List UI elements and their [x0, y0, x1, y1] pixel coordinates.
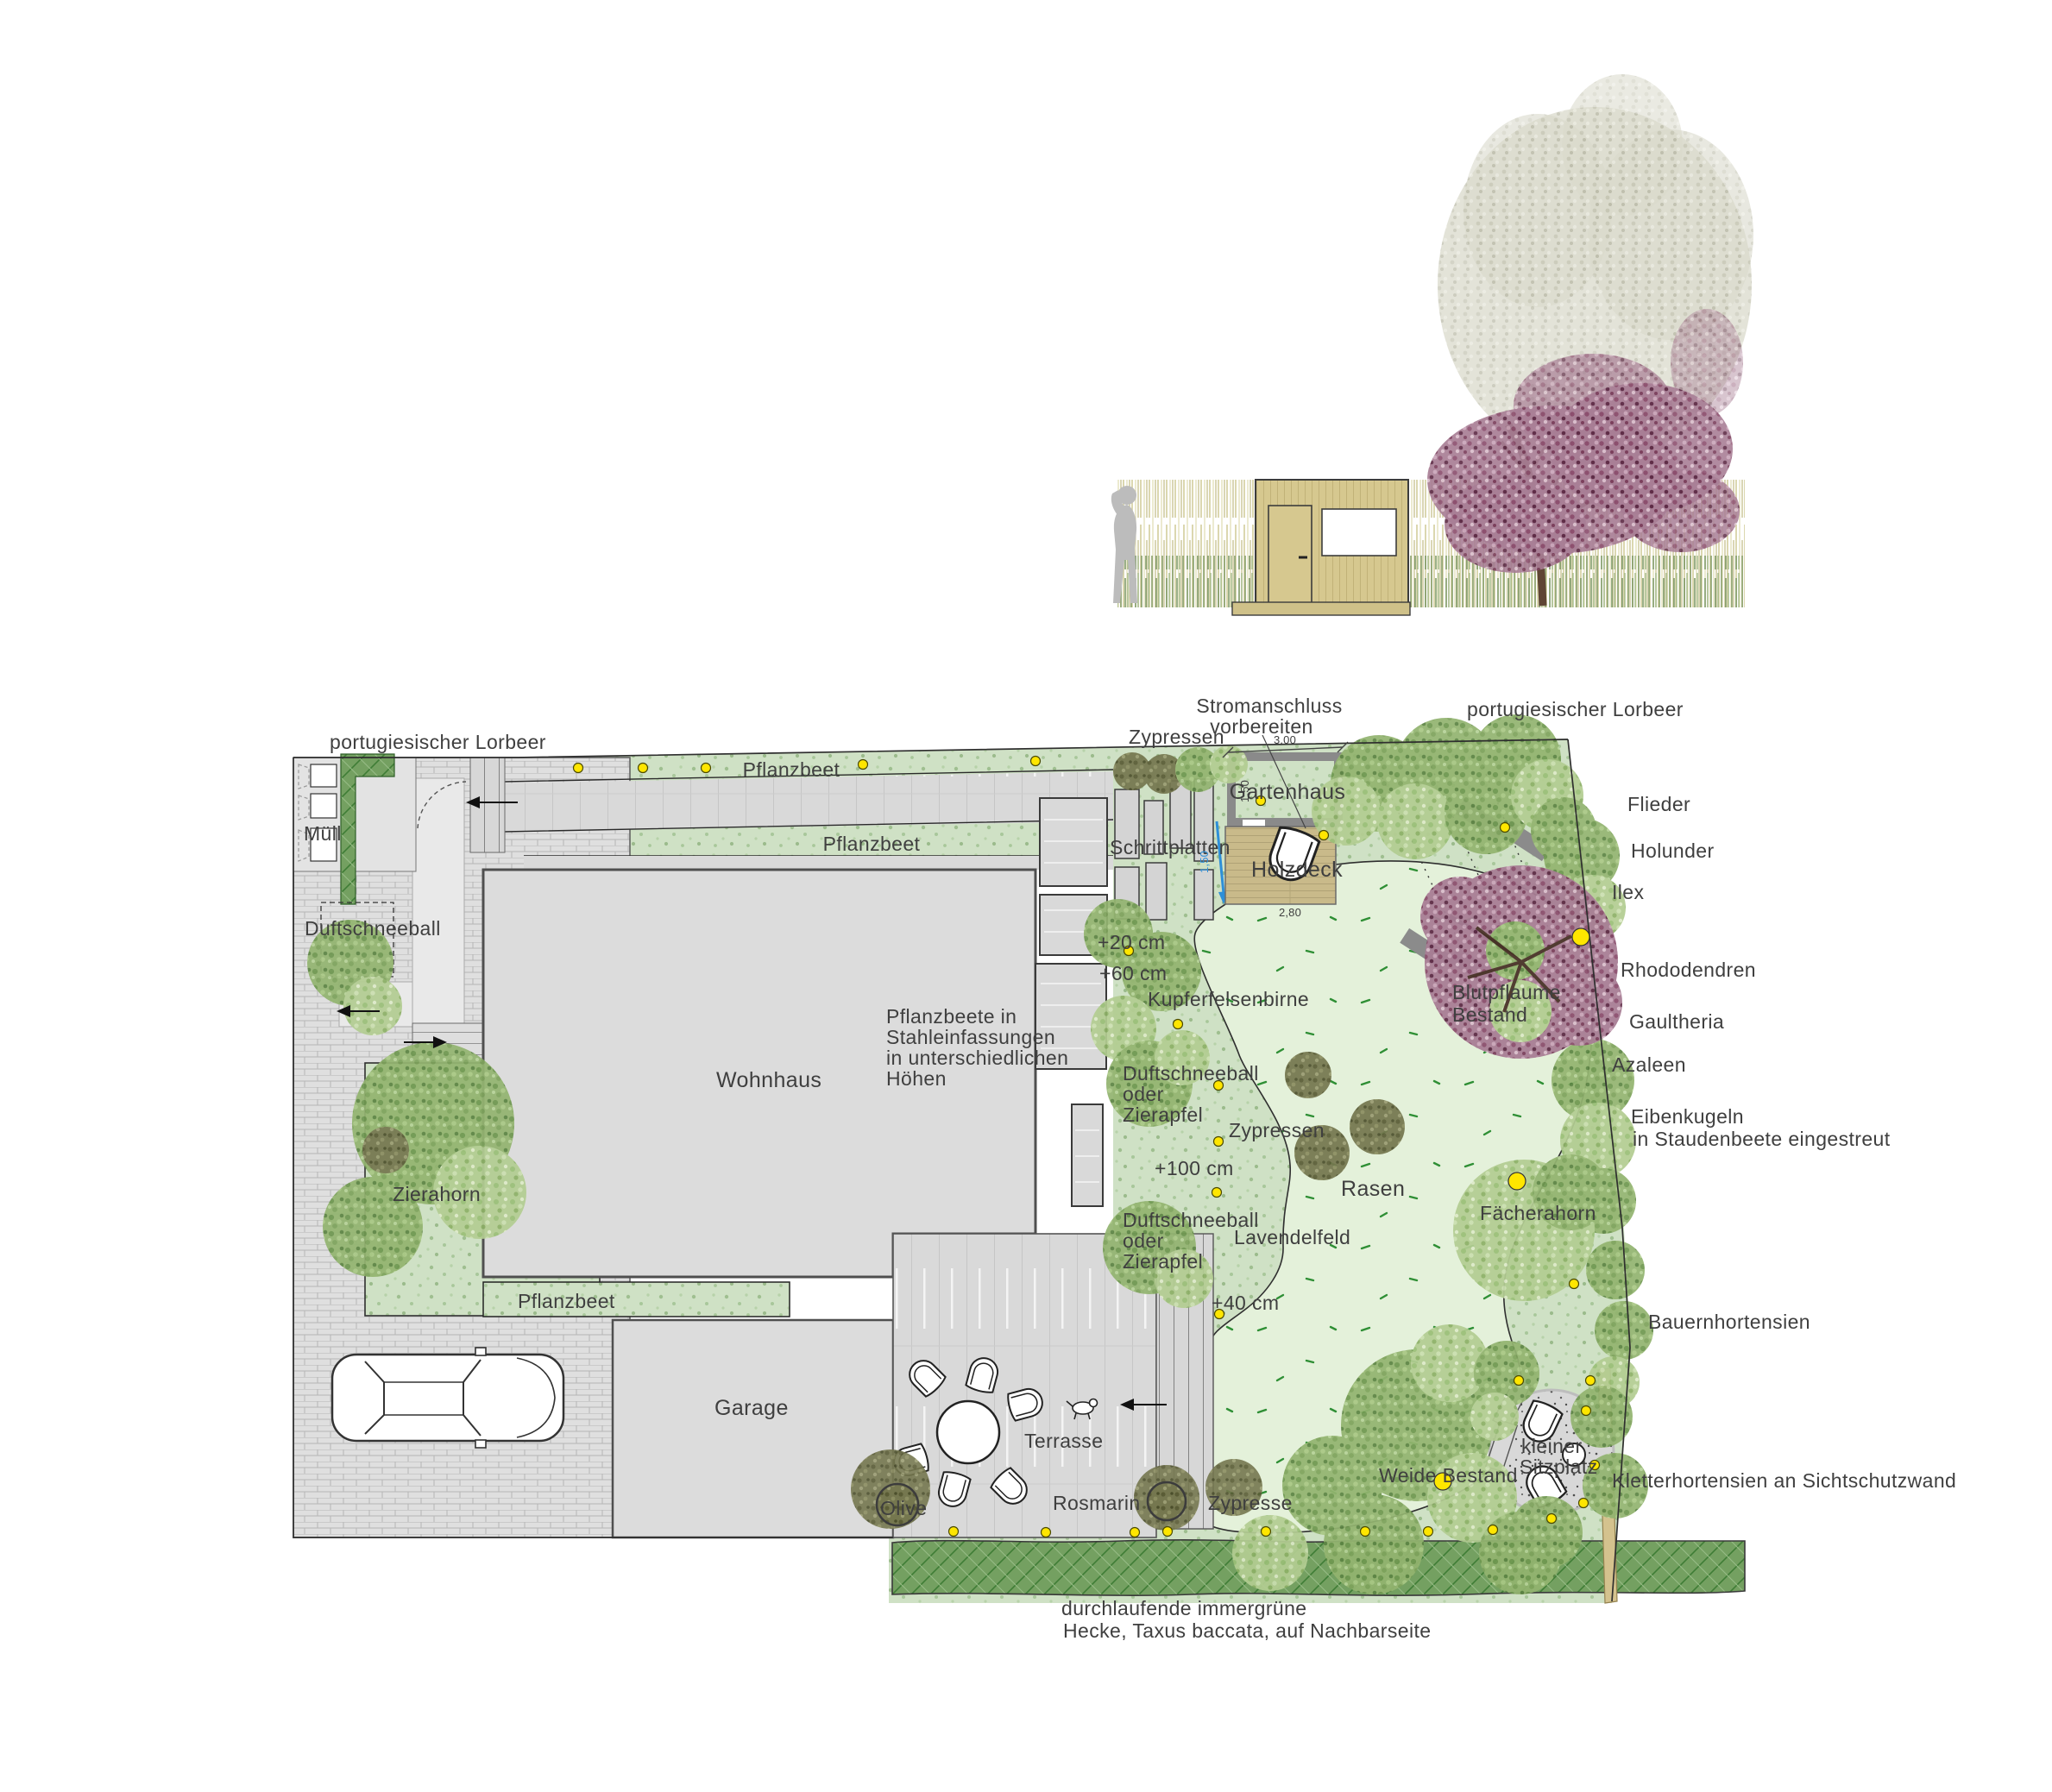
label-hydrangea: Bauernhortensien: [1648, 1311, 1810, 1333]
label-steel-3: in unterschiedlichen: [886, 1047, 1068, 1069]
label-power-1: Stromanschluss: [1196, 695, 1342, 717]
label-h100: +100 cm: [1155, 1157, 1234, 1179]
label-plum-2: Bestand: [1452, 1003, 1527, 1026]
label-hedge-2: Hecke, Taxus baccata, auf Nachbarseite: [1063, 1619, 1431, 1642]
label-seat-1: kleiner: [1521, 1435, 1583, 1457]
label-laurel-left: portugiesischer Lorbeer: [330, 731, 546, 753]
blossom-tree-elevation: [1427, 74, 1753, 606]
site-plan: portugiesischer Lorbeer portugiesischer …: [293, 695, 1956, 1642]
label-bed-left: Pflanzbeet: [518, 1290, 615, 1312]
garage-footprint: [613, 1320, 893, 1537]
label-olive: Olive: [880, 1497, 927, 1519]
dim-gartenhaus-width: 3,00: [1274, 733, 1296, 746]
label-steel-1: Pflanzbeete in: [886, 1005, 1017, 1028]
steel-frame-beds: [1035, 798, 1107, 1206]
label-azaleen: Azaleen: [1612, 1053, 1686, 1076]
label-garage: Garage: [714, 1396, 789, 1420]
label-rhododendren: Rhododendren: [1621, 959, 1756, 981]
label-terrace: Terrasse: [1024, 1430, 1103, 1452]
label-hedge-1: durchlaufende immergrüne: [1061, 1597, 1306, 1619]
label-duft1-1: Duftschneeball: [1123, 1062, 1259, 1085]
walkway-house-edge: [524, 856, 1113, 870]
label-bed-top: Pflanzbeet: [743, 758, 840, 781]
label-steel-2: Stahleinfassungen: [886, 1026, 1055, 1048]
label-cypresses-mid: Zypressen: [1229, 1119, 1325, 1141]
label-fan-maple: Fächerahorn: [1480, 1202, 1596, 1224]
label-duftschneeball-left: Duftschneeball: [305, 917, 441, 940]
label-duft2-2: oder: [1123, 1229, 1164, 1252]
label-seat-2: Sitzplatz: [1520, 1456, 1598, 1478]
car: [332, 1348, 563, 1448]
label-plum-1: Blutpflaume: [1452, 981, 1561, 1003]
label-eiben-2: in Staudenbeete eingestreut: [1633, 1128, 1891, 1150]
label-house: Wohnhaus: [716, 1068, 821, 1092]
label-eiben-1: Eibenkugeln: [1631, 1105, 1744, 1128]
dim-water-channel: 1,50: [1198, 851, 1211, 873]
label-bed-mid: Pflanzbeet: [823, 833, 921, 855]
label-lawn: Rasen: [1341, 1177, 1405, 1201]
label-h40: +40 cm: [1212, 1292, 1279, 1314]
dim-deck-width: 2,80: [1279, 906, 1301, 919]
label-duft1-3: Zierapfel: [1123, 1103, 1203, 1126]
rosemary-pot: [1134, 1465, 1199, 1531]
label-climbing-hydrangea: Kletterhortensien an Sichtschutzwand: [1612, 1469, 1956, 1492]
label-wood-deck: Holzdeck: [1251, 858, 1343, 882]
label-willow: Weide Bestand: [1379, 1464, 1518, 1487]
label-lavender: Lavendelfeld: [1234, 1226, 1350, 1248]
label-waste: Müll: [304, 822, 342, 845]
label-gaultheria: Gaultheria: [1629, 1010, 1724, 1033]
label-h20: +20 cm: [1098, 931, 1165, 953]
label-ilex: Ilex: [1612, 881, 1644, 903]
label-flieder: Flieder: [1627, 793, 1690, 815]
label-h60: +60 cm: [1099, 962, 1167, 984]
dim-gartenhaus-depth: 1,50: [1238, 780, 1251, 802]
label-cypresses-top: Zypressen: [1129, 726, 1224, 748]
label-holunder: Holunder: [1631, 839, 1715, 862]
garden-plan-page: portugiesischer Lorbeer portugiesischer …: [0, 0, 2052, 1792]
label-steel-4: Höhen: [886, 1067, 947, 1090]
label-cypress-bottom: Zypresse: [1208, 1492, 1293, 1514]
label-duft2-3: Zierapfel: [1123, 1250, 1203, 1273]
elevation-view: [1111, 74, 1753, 615]
label-duft1-2: oder: [1123, 1083, 1164, 1105]
label-zierahorn: Zierahorn: [393, 1183, 481, 1205]
label-stepping-plates: Schrittplatten: [1110, 836, 1231, 858]
label-laurel-right: portugiesischer Lorbeer: [1467, 698, 1684, 720]
garden-house-elevation: [1232, 480, 1410, 615]
label-power-2: vorbereiten: [1210, 715, 1312, 738]
label-rosemary: Rosmarin: [1053, 1492, 1141, 1514]
label-serviceberry: Kupferfelsenbirne: [1148, 988, 1309, 1010]
